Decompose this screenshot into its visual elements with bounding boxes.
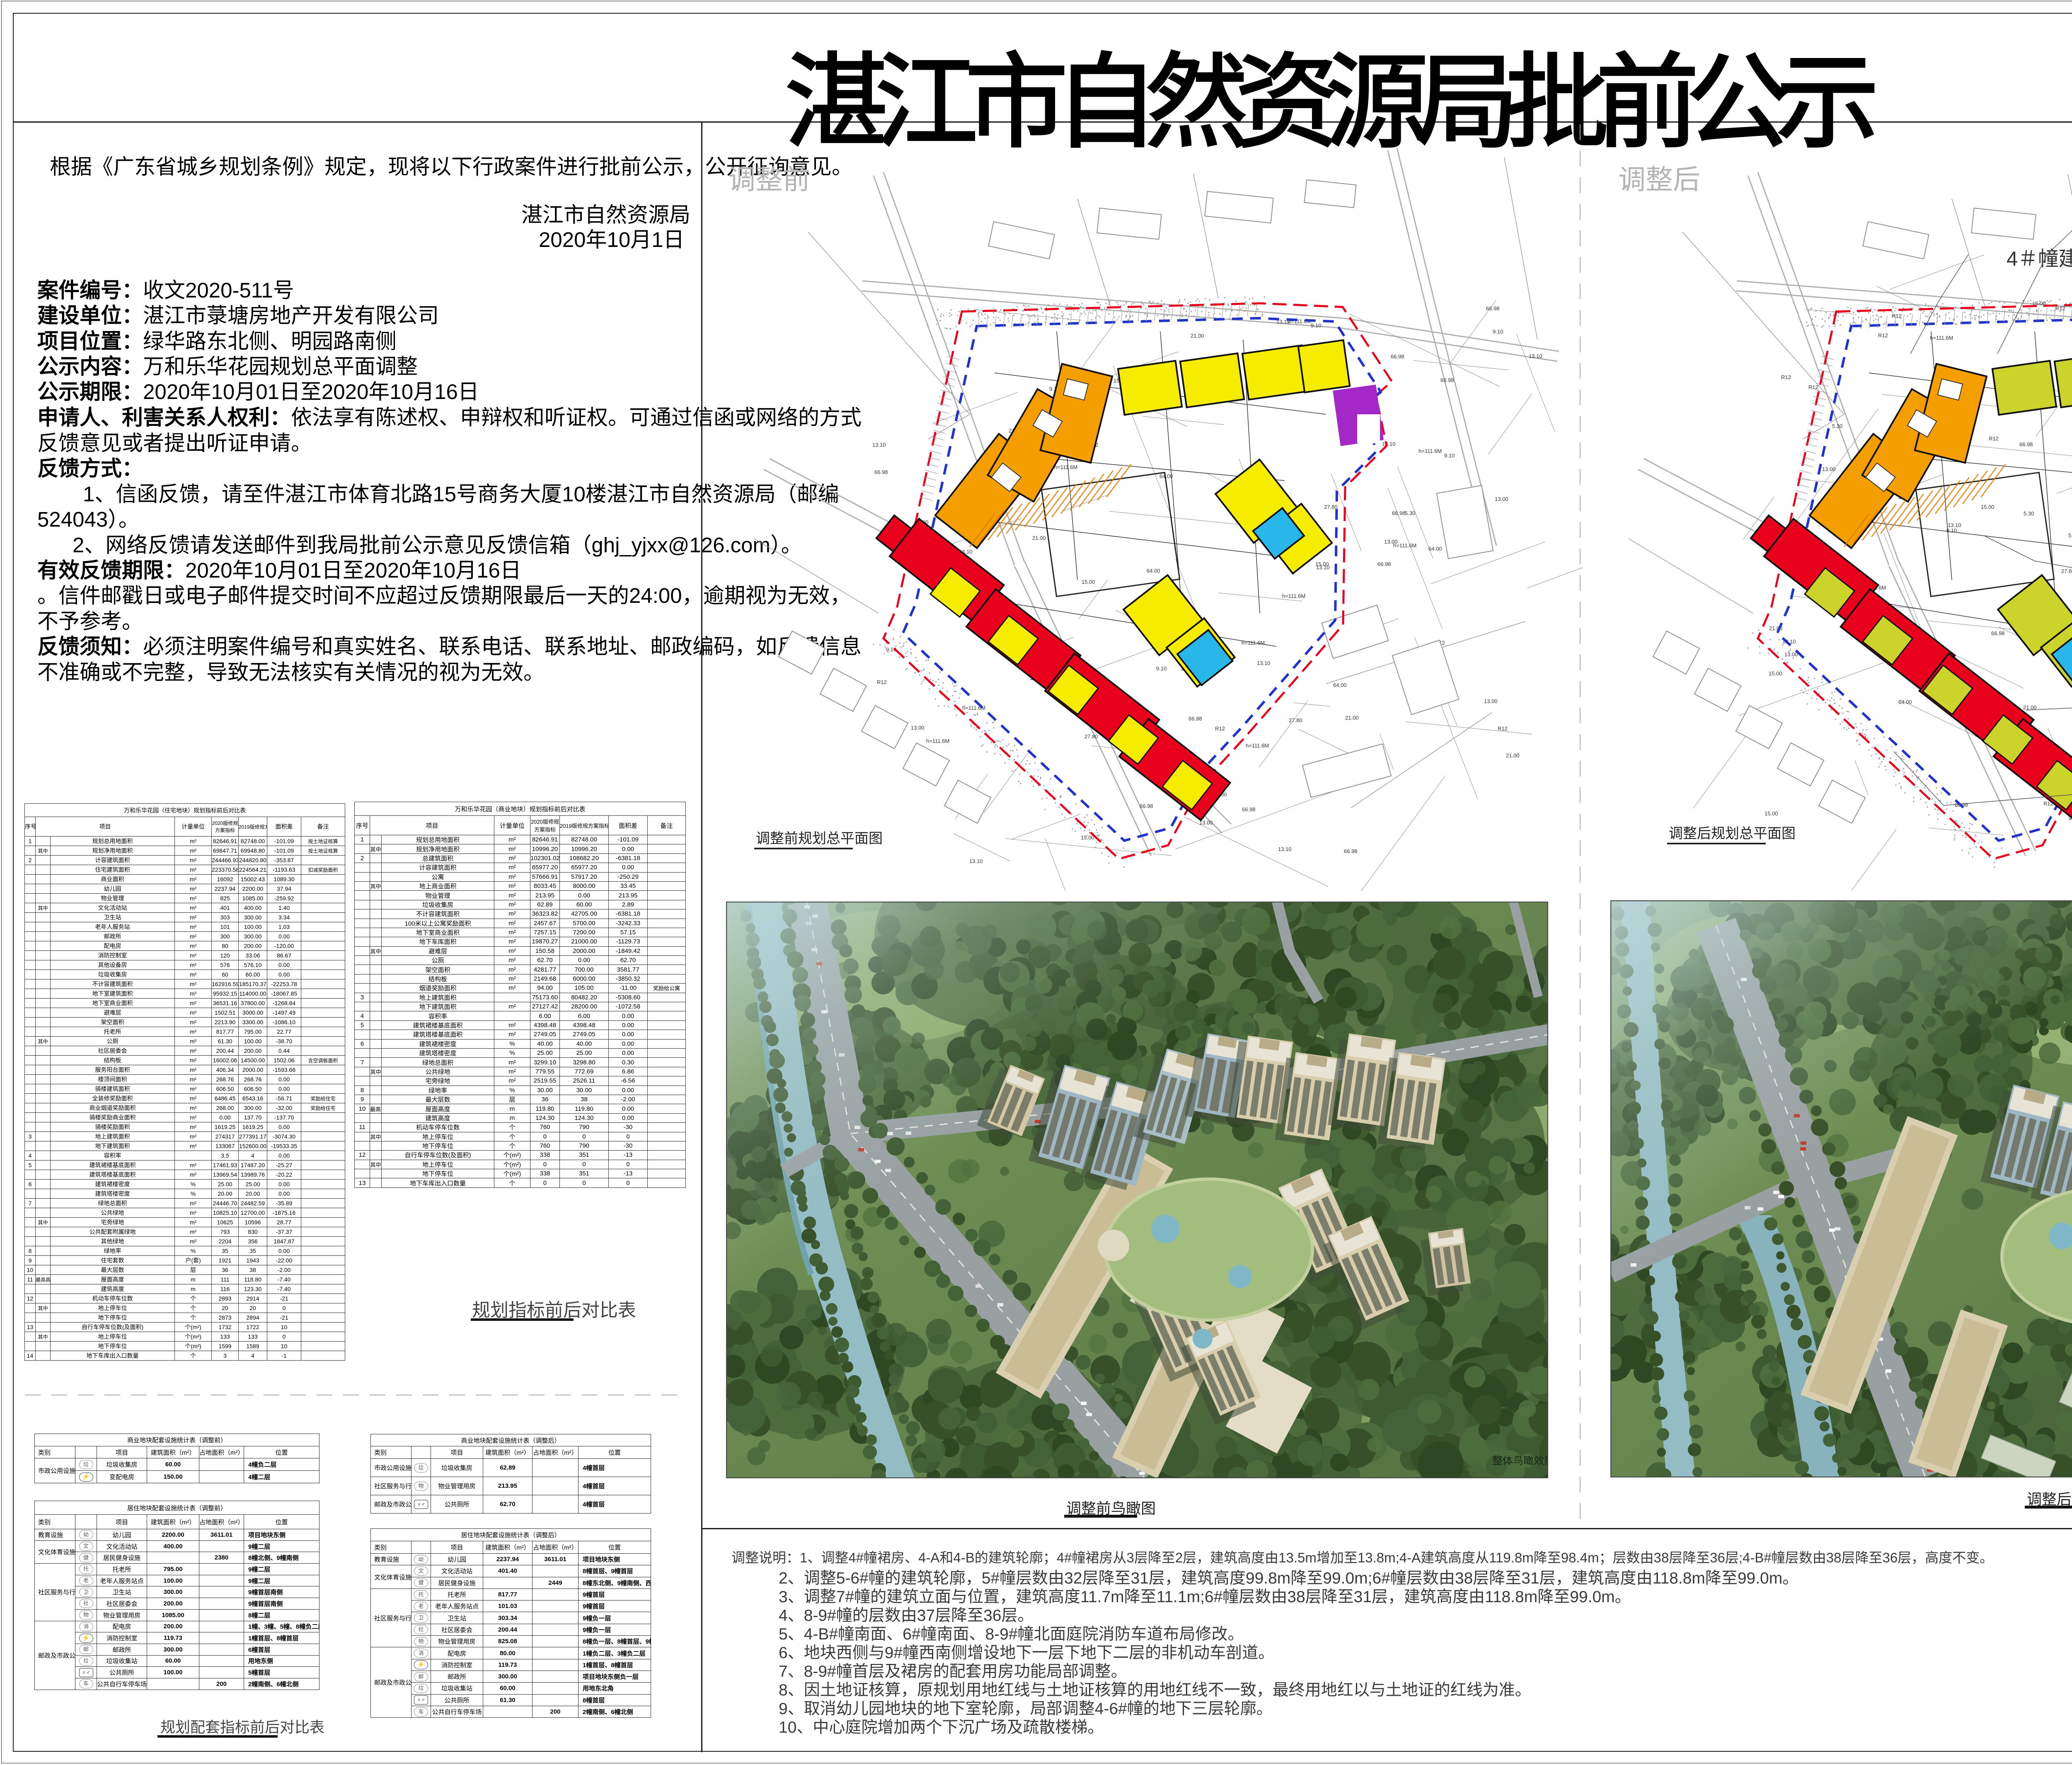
svg-text:27.80: 27.80 [1289, 717, 1302, 723]
svg-text:66.98: 66.98 [1440, 377, 1454, 383]
svg-text:h=111.6M: h=111.6M [1246, 742, 1269, 749]
svg-text:15.00: 15.00 [1082, 579, 1095, 585]
svg-text:h=111.6M: h=111.6M [1282, 593, 1305, 599]
svg-text:13.00: 13.00 [911, 725, 925, 731]
svg-text:21.00: 21.00 [1191, 333, 1204, 339]
svg-text:66.98: 66.98 [1188, 716, 1202, 722]
svg-text:13.10: 13.10 [969, 858, 983, 864]
svg-text:13.10: 13.10 [1257, 660, 1271, 666]
svg-text:R12: R12 [1215, 725, 1225, 732]
svg-text:66.98: 66.98 [1344, 848, 1358, 854]
svg-text:66.98: 66.98 [1140, 803, 1153, 809]
svg-text:66.98: 66.98 [1391, 353, 1404, 360]
svg-text:66.98: 66.98 [1392, 510, 1406, 516]
svg-text:15.00: 15.00 [1315, 561, 1329, 567]
svg-text:21.00: 21.00 [1032, 535, 1046, 541]
svg-text:R12: R12 [877, 679, 887, 685]
svg-text:64.00: 64.00 [1428, 546, 1442, 552]
svg-text:9.10: 9.10 [1493, 329, 1503, 335]
svg-text:5.30: 5.30 [1405, 510, 1415, 516]
svg-text:13.00: 13.00 [1484, 698, 1498, 704]
svg-text:13.10: 13.10 [1278, 846, 1292, 852]
svg-text:27.80: 27.80 [1084, 733, 1098, 740]
svg-text:64.00: 64.00 [1147, 568, 1160, 574]
svg-text:21.00: 21.00 [1345, 715, 1359, 721]
svg-text:66.98: 66.98 [874, 469, 888, 475]
svg-text:h=111.6M: h=111.6M [926, 738, 949, 744]
svg-text:13.10: 13.10 [1529, 353, 1542, 359]
svg-text:13.00: 13.00 [1384, 539, 1398, 545]
svg-text:66.98: 66.98 [1486, 305, 1500, 312]
svg-text:9.10: 9.10 [1311, 322, 1321, 329]
svg-text:h=111.6M: h=111.6M [1054, 464, 1077, 470]
svg-text:13.00: 13.00 [1495, 496, 1508, 502]
svg-text:h=111.6M: h=111.6M [1418, 448, 1442, 454]
svg-text:R12: R12 [1498, 725, 1508, 732]
svg-text:64.00: 64.00 [1159, 473, 1173, 479]
svg-text:13.10: 13.10 [1382, 441, 1396, 447]
svg-text:21.00: 21.00 [1506, 752, 1520, 759]
svg-text:66.98: 66.98 [1242, 806, 1256, 812]
svg-text:13.10: 13.10 [872, 442, 886, 448]
svg-text:66.98: 66.98 [1377, 561, 1391, 567]
svg-text:15.00: 15.00 [1081, 834, 1094, 841]
svg-text:64.00: 64.00 [1333, 682, 1347, 688]
svg-text:9.10: 9.10 [1156, 665, 1167, 672]
svg-text:9.10: 9.10 [1444, 452, 1455, 459]
